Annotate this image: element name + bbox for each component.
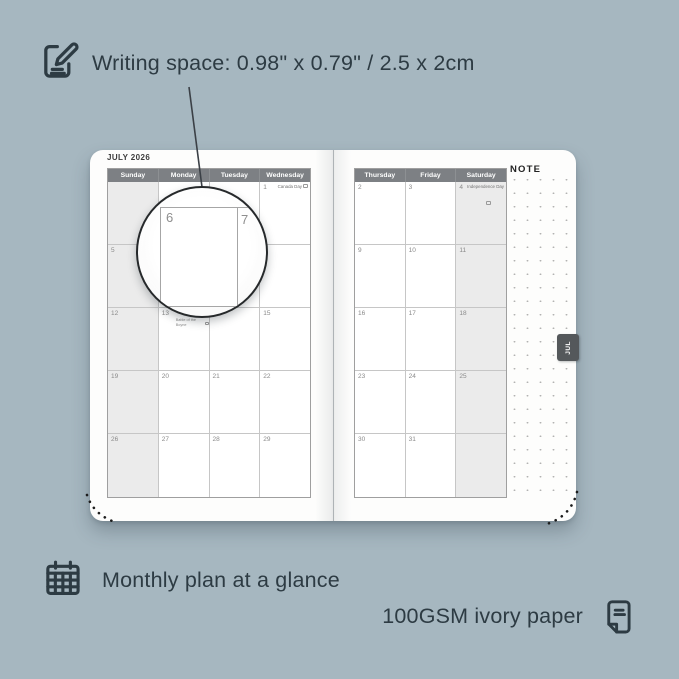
day-cell: 22 (260, 371, 310, 434)
day-cell: 27 (159, 434, 210, 497)
month-tab-label: JUL (565, 341, 572, 355)
day-number: 26 (111, 436, 118, 443)
day-number: 10 (409, 247, 416, 254)
calendar-week-row: 19202122 (108, 371, 310, 434)
day-number: 20 (162, 373, 169, 380)
day-cell: 16 (355, 308, 406, 371)
day-number: 23 (358, 373, 365, 380)
day-cell: 19 (108, 371, 159, 434)
magnifier-circle: 6 7 (136, 186, 268, 318)
page-gutter-line (333, 150, 334, 521)
day-cell: 12 (108, 308, 159, 371)
day-cell: 9 (355, 245, 406, 308)
day-number: 27 (162, 436, 169, 443)
day-cell: 28 (210, 434, 261, 497)
calendar-week-row: 232425 (355, 371, 506, 434)
note-label: NOTE (510, 164, 545, 175)
pencil-note-icon (37, 36, 83, 84)
day-cell: 30 (355, 434, 406, 497)
calendar-week-row: 26272829 (108, 434, 310, 497)
weekday-header: Monday (159, 169, 210, 182)
day-cell: 21 (210, 371, 261, 434)
magnified-day-number: 6 (166, 210, 173, 225)
day-number: 29 (263, 436, 270, 443)
day-number: 3 (409, 184, 413, 191)
day-cell: 31 (406, 434, 457, 497)
day-number: 2 (358, 184, 362, 191)
day-cell: 24 (406, 371, 457, 434)
weekday-header: Tuesday (210, 169, 261, 182)
calendar-week-row: 91011 (355, 245, 506, 308)
day-cell: 10 (406, 245, 457, 308)
day-number: 28 (213, 436, 220, 443)
holiday-label: Independence Day (467, 184, 504, 190)
day-cell: 11 (456, 245, 506, 308)
flag-icon (303, 184, 308, 188)
weekday-header: Sunday (108, 169, 159, 182)
monthly-plan-label: Monthly plan at a glance (102, 568, 340, 593)
right-page-grid: ThursdayFridaySaturday234Independence Da… (354, 168, 507, 498)
day-cell: 2 (355, 182, 406, 245)
flag-icon (205, 322, 209, 325)
magnified-day-number-next: 7 (241, 212, 248, 227)
day-cell: 29 (260, 434, 310, 497)
day-cell: 25 (456, 371, 506, 434)
day-number: 4 (459, 184, 463, 191)
weekday-header: Saturday (456, 169, 506, 182)
day-cell: 3 (406, 182, 457, 245)
weekday-header: Wednesday (260, 169, 310, 182)
day-number: 19 (111, 373, 118, 380)
day-number: 1 (263, 184, 267, 191)
day-cell: 17 (406, 308, 457, 371)
day-number: 13 (162, 310, 169, 317)
day-number: 21 (213, 373, 220, 380)
calendar-grid-icon (40, 556, 85, 600)
magnified-grid-line (238, 207, 268, 208)
day-cell: 23 (355, 371, 406, 434)
holiday-label: Canada Day (278, 184, 302, 190)
weekday-header: Thursday (355, 169, 406, 182)
writing-space-label: Writing space: 0.98" x 0.79" / 2.5 x 2cm (92, 51, 475, 76)
holiday-label: Battle of the Boyne (176, 318, 209, 328)
day-cell: 1Canada Day (260, 182, 310, 245)
day-number: 30 (358, 436, 365, 443)
day-cell: 4Independence Day (456, 182, 506, 245)
day-number: 15 (263, 310, 270, 317)
flag-icon (486, 201, 491, 205)
month-title: JULY 2026 (107, 153, 150, 162)
calendar-week-row: 234Independence Day (355, 182, 506, 245)
day-number: 18 (459, 310, 466, 317)
day-number: 16 (358, 310, 365, 317)
paper-sheet-icon (598, 592, 639, 644)
day-number: 5 (111, 247, 115, 254)
day-cell: 15 (260, 308, 310, 371)
day-number: 9 (358, 247, 362, 254)
day-number: 25 (459, 373, 466, 380)
day-number: 22 (263, 373, 270, 380)
day-cell: 14 (210, 308, 261, 371)
day-number: 11 (459, 247, 466, 254)
day-number: 31 (409, 436, 416, 443)
paper-label: 100GSM ivory paper (382, 604, 583, 629)
month-tab-jul: JUL (557, 334, 579, 361)
calendar-week-row: 161718 (355, 308, 506, 371)
calendar-week-row: 3031 (355, 434, 506, 497)
day-number: 24 (409, 373, 416, 380)
day-cell: 20 (159, 371, 210, 434)
day-cell: 18 (456, 308, 506, 371)
day-number: 17 (409, 310, 416, 317)
day-cell (456, 434, 506, 497)
day-cell: 26 (108, 434, 159, 497)
day-number: 12 (111, 310, 118, 317)
weekday-header: Friday (406, 169, 457, 182)
